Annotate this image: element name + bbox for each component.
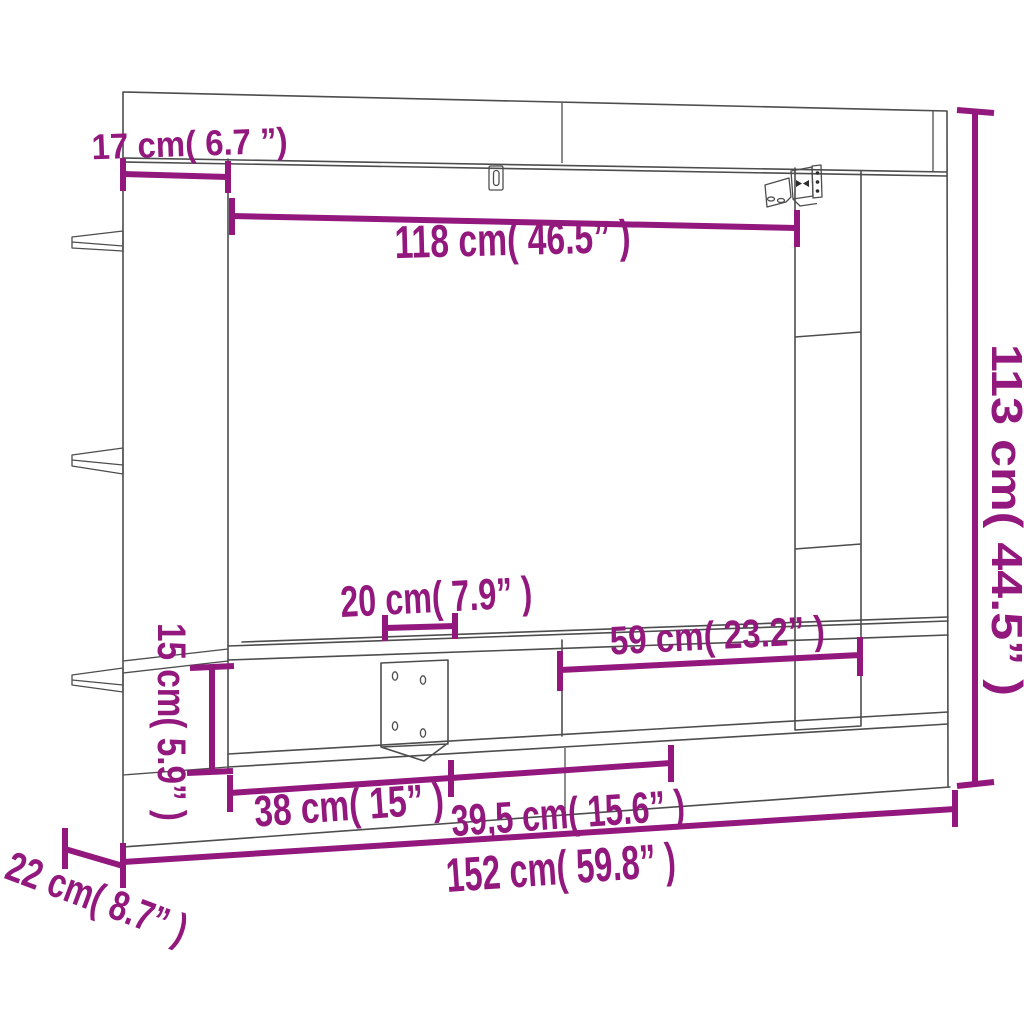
product-dimension-diagram: 17 cm( 6.7 ”) 118 cm( 46.5” ) 113 cm( 44… <box>0 0 1024 1024</box>
wall-bracket-icon <box>765 165 822 207</box>
dimension-mid-compartment-width-lines <box>451 745 671 782</box>
dimension-total-height: 113 cm( 44.5” ) <box>957 110 1024 786</box>
dimension-depth: 22 cm( 8.7” ) <box>0 828 194 953</box>
dimension-total-height-label: 113 cm( 44.5” ) <box>982 344 1024 696</box>
dimension-left-compartment-width-label: 38 cm( 15” ) <box>253 774 446 836</box>
dimension-total-width-label: 152 cm( 59.8” ) <box>444 834 677 903</box>
screw-hole-icon <box>392 722 397 730</box>
dimension-compartment-height-label: 15 cm( 5.9” ) <box>149 623 193 821</box>
dimension-inner-width: 118 cm( 46.5” ) <box>232 198 797 268</box>
side-shelf-tab-1 <box>72 231 123 251</box>
screw-hole-icon <box>420 676 425 684</box>
side-shelf-tab-2 <box>72 448 123 474</box>
top-panel-seam <box>562 103 933 171</box>
dimension-compartment-height: 15 cm( 5.9” ) <box>149 623 234 821</box>
dimension-compartment-height-lines <box>187 666 234 773</box>
side-shelf-tab-3 <box>72 668 123 692</box>
keyhole-mount-icon <box>489 166 503 190</box>
cable-box-outline <box>381 660 448 761</box>
cabinet-drawing <box>72 92 950 847</box>
cable-box-holes <box>392 672 425 737</box>
dimension-center-niche-width: 20 cm( 7.9” ) <box>339 568 533 641</box>
cable-box <box>381 660 448 761</box>
cabinet-outer-frame <box>123 92 950 847</box>
dimension-inner-width-label: 118 cm( 46.5” ) <box>394 210 631 268</box>
dimension-center-niche-width-label: 20 cm( 7.9” ) <box>339 568 533 627</box>
dimension-layer: 17 cm( 6.7 ”) 118 cm( 46.5” ) 113 cm( 44… <box>0 110 1024 953</box>
screw-hole-icon <box>420 729 425 737</box>
dimension-right-niche-width: 59 cm( 23.2” ) <box>560 608 860 691</box>
dimension-shelf-depth: 17 cm( 6.7 ”) <box>91 120 288 193</box>
screw-hole-icon <box>392 672 397 680</box>
dimension-left-compartment-width: 38 cm( 15” ) <box>230 760 451 837</box>
bench-bottom <box>228 712 948 767</box>
diagram-canvas: 17 cm( 6.7 ”) 118 cm( 46.5” ) 113 cm( 44… <box>0 0 1024 1024</box>
dimension-shelf-depth-label: 17 cm( 6.7 ”) <box>91 120 288 168</box>
